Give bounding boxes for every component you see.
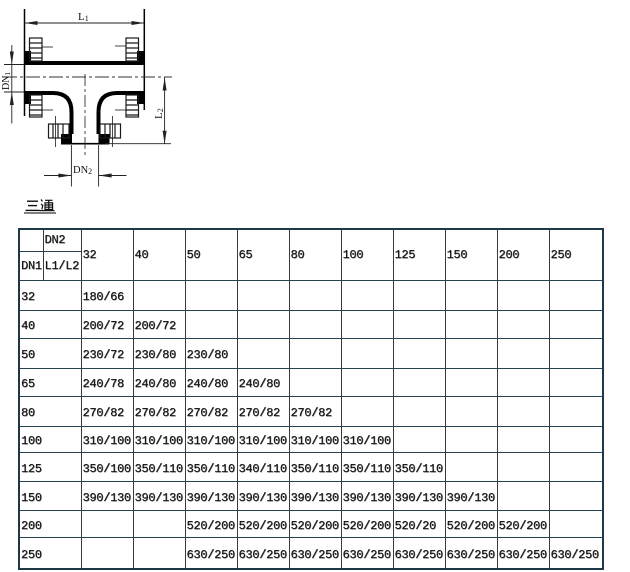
svg-text:DN1: DN1 — [1, 72, 12, 90]
svg-text:L1: L1 — [78, 11, 89, 23]
svg-text:L2: L2 — [153, 108, 165, 119]
svg-text:DN2: DN2 — [73, 165, 92, 176]
